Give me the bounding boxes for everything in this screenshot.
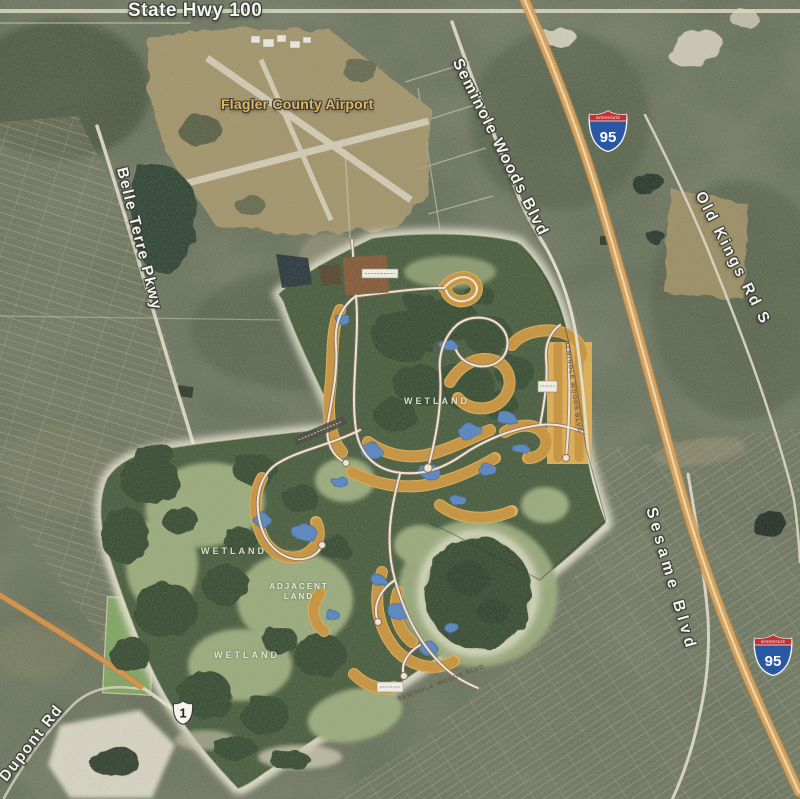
interstate-95-shield-south: INTERSTATE 95 (753, 634, 793, 681)
interstate-band-text: INTERSTATE (596, 115, 621, 120)
us-route-1-shield: 1 (172, 700, 194, 730)
aerial-basemap (0, 0, 800, 799)
interstate-shield-icon: INTERSTATE 95 (753, 634, 793, 676)
aerial-grain-light (0, 0, 800, 799)
interstate-band-text: INTERSTATE (761, 639, 786, 644)
us-route-shield-icon: 1 (172, 700, 194, 725)
interstate-shield-icon: INTERSTATE 95 (588, 110, 628, 152)
interstate-95-shield-north: INTERSTATE 95 (588, 110, 628, 157)
wetland-label-south: WETLAND (214, 651, 280, 660)
wetland-label-west: WETLAND (201, 547, 267, 556)
adjacent-land-line2: LAND (263, 592, 335, 602)
adjacent-land-label: ADJACENT LAND (263, 582, 335, 602)
adjacent-land-line1: ADJACENT (263, 582, 335, 592)
interstate-number: 95 (765, 653, 782, 670)
wetland-label-north: WETLAND (404, 397, 470, 406)
satellite-map: State Hwy 100 Flagler County Airport Sem… (0, 0, 800, 799)
us-route-number: 1 (179, 706, 186, 721)
interstate-number: 95 (600, 129, 617, 146)
